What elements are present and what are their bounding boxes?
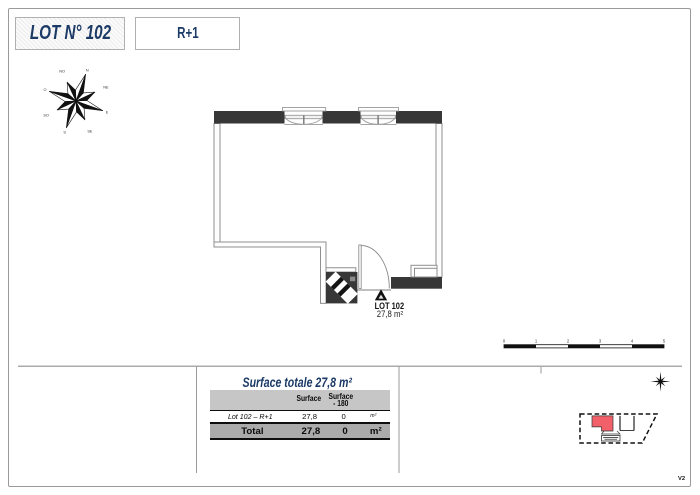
svg-text:S: S [63, 130, 66, 134]
svg-text:5: 5 [663, 339, 666, 344]
svg-text:0: 0 [503, 339, 506, 344]
svg-text:4: 4 [631, 339, 634, 344]
svg-text:1: 1 [535, 339, 538, 344]
svg-text:N: N [86, 68, 89, 72]
svg-text:3: 3 [599, 339, 602, 344]
svg-text:O: O [44, 88, 47, 92]
svg-text:NE: NE [103, 86, 109, 90]
svg-text:SO: SO [43, 113, 49, 117]
svg-text:E: E [106, 111, 109, 115]
svg-text:SE: SE [87, 129, 93, 133]
svg-text:NO: NO [59, 70, 65, 74]
svg-text:2: 2 [567, 339, 570, 344]
